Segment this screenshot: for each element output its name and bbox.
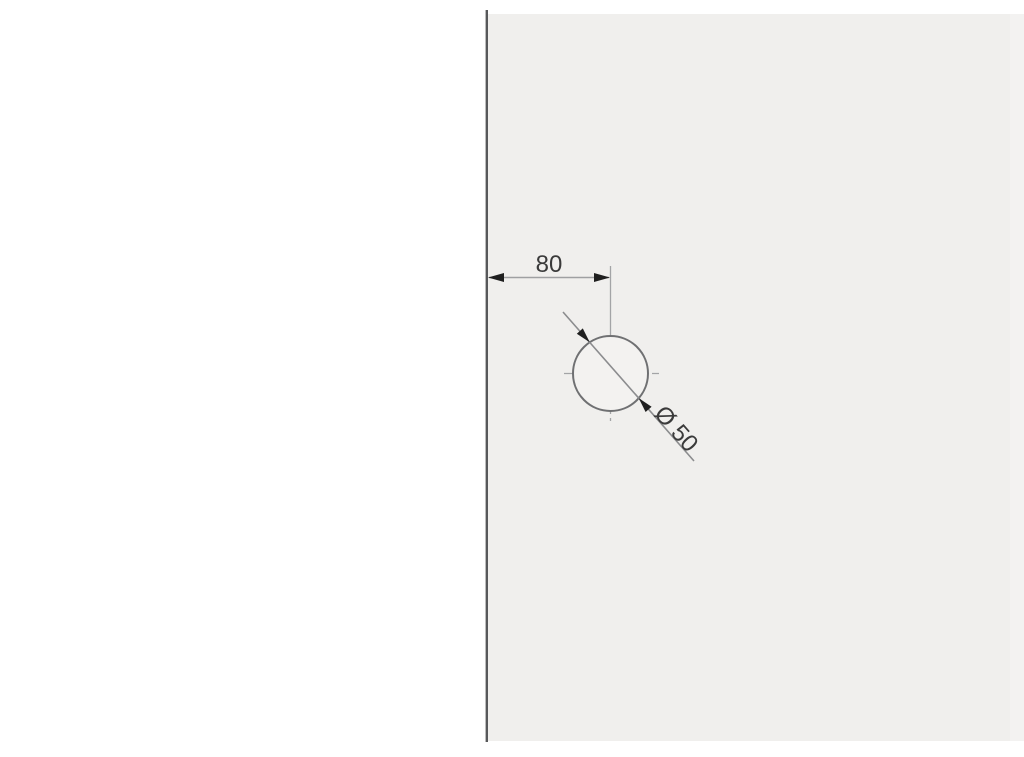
width-dimension-label: 80 (536, 251, 563, 278)
technical-drawing: 80 Ø 50 (0, 0, 1024, 757)
panel-edge-line (486, 10, 488, 742)
drawing-panel (488, 14, 1024, 741)
panel-right-highlight (1010, 14, 1024, 741)
drawing-canvas: 80 Ø 50 (0, 0, 1024, 757)
hole-circle (573, 336, 648, 411)
